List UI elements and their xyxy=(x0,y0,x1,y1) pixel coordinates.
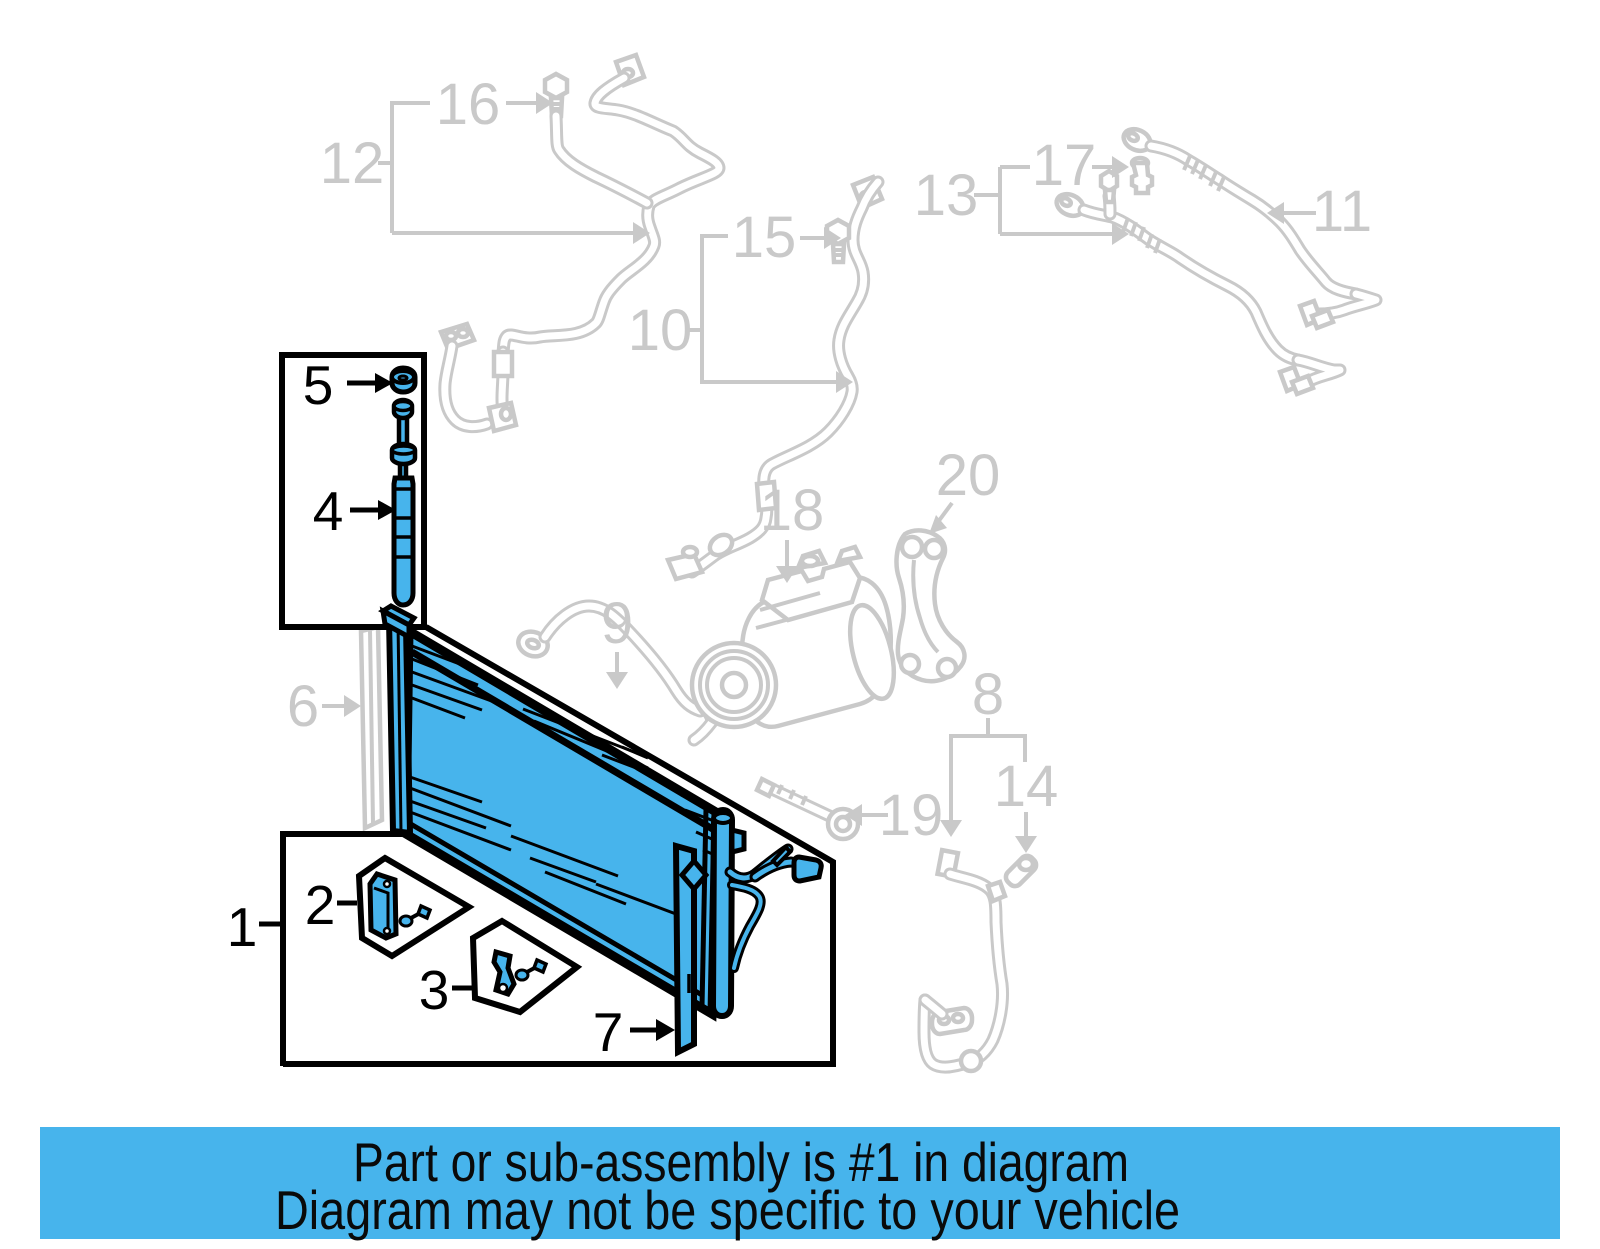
svg-text:19: 19 xyxy=(879,783,944,848)
svg-text:8: 8 xyxy=(972,662,1004,727)
svg-text:18: 18 xyxy=(760,478,825,543)
svg-text:4: 4 xyxy=(313,480,344,542)
svg-text:16: 16 xyxy=(436,72,501,137)
svg-text:15: 15 xyxy=(732,205,797,270)
svg-text:20: 20 xyxy=(936,443,1001,508)
svg-text:6: 6 xyxy=(287,674,319,739)
svg-text:3: 3 xyxy=(419,959,450,1021)
svg-text:5: 5 xyxy=(303,354,334,416)
svg-text:12: 12 xyxy=(320,131,385,196)
svg-text:2: 2 xyxy=(305,874,336,936)
svg-text:10: 10 xyxy=(628,298,693,363)
svg-text:17: 17 xyxy=(1032,133,1097,198)
svg-text:Diagram may not be specific to: Diagram may not be specific to your vehi… xyxy=(275,1179,1180,1241)
svg-text:7: 7 xyxy=(593,1001,624,1063)
svg-text:11: 11 xyxy=(1312,179,1372,244)
svg-text:1: 1 xyxy=(227,896,258,958)
svg-text:14: 14 xyxy=(994,754,1059,819)
svg-text:9: 9 xyxy=(601,591,633,656)
svg-text:13: 13 xyxy=(914,163,979,228)
